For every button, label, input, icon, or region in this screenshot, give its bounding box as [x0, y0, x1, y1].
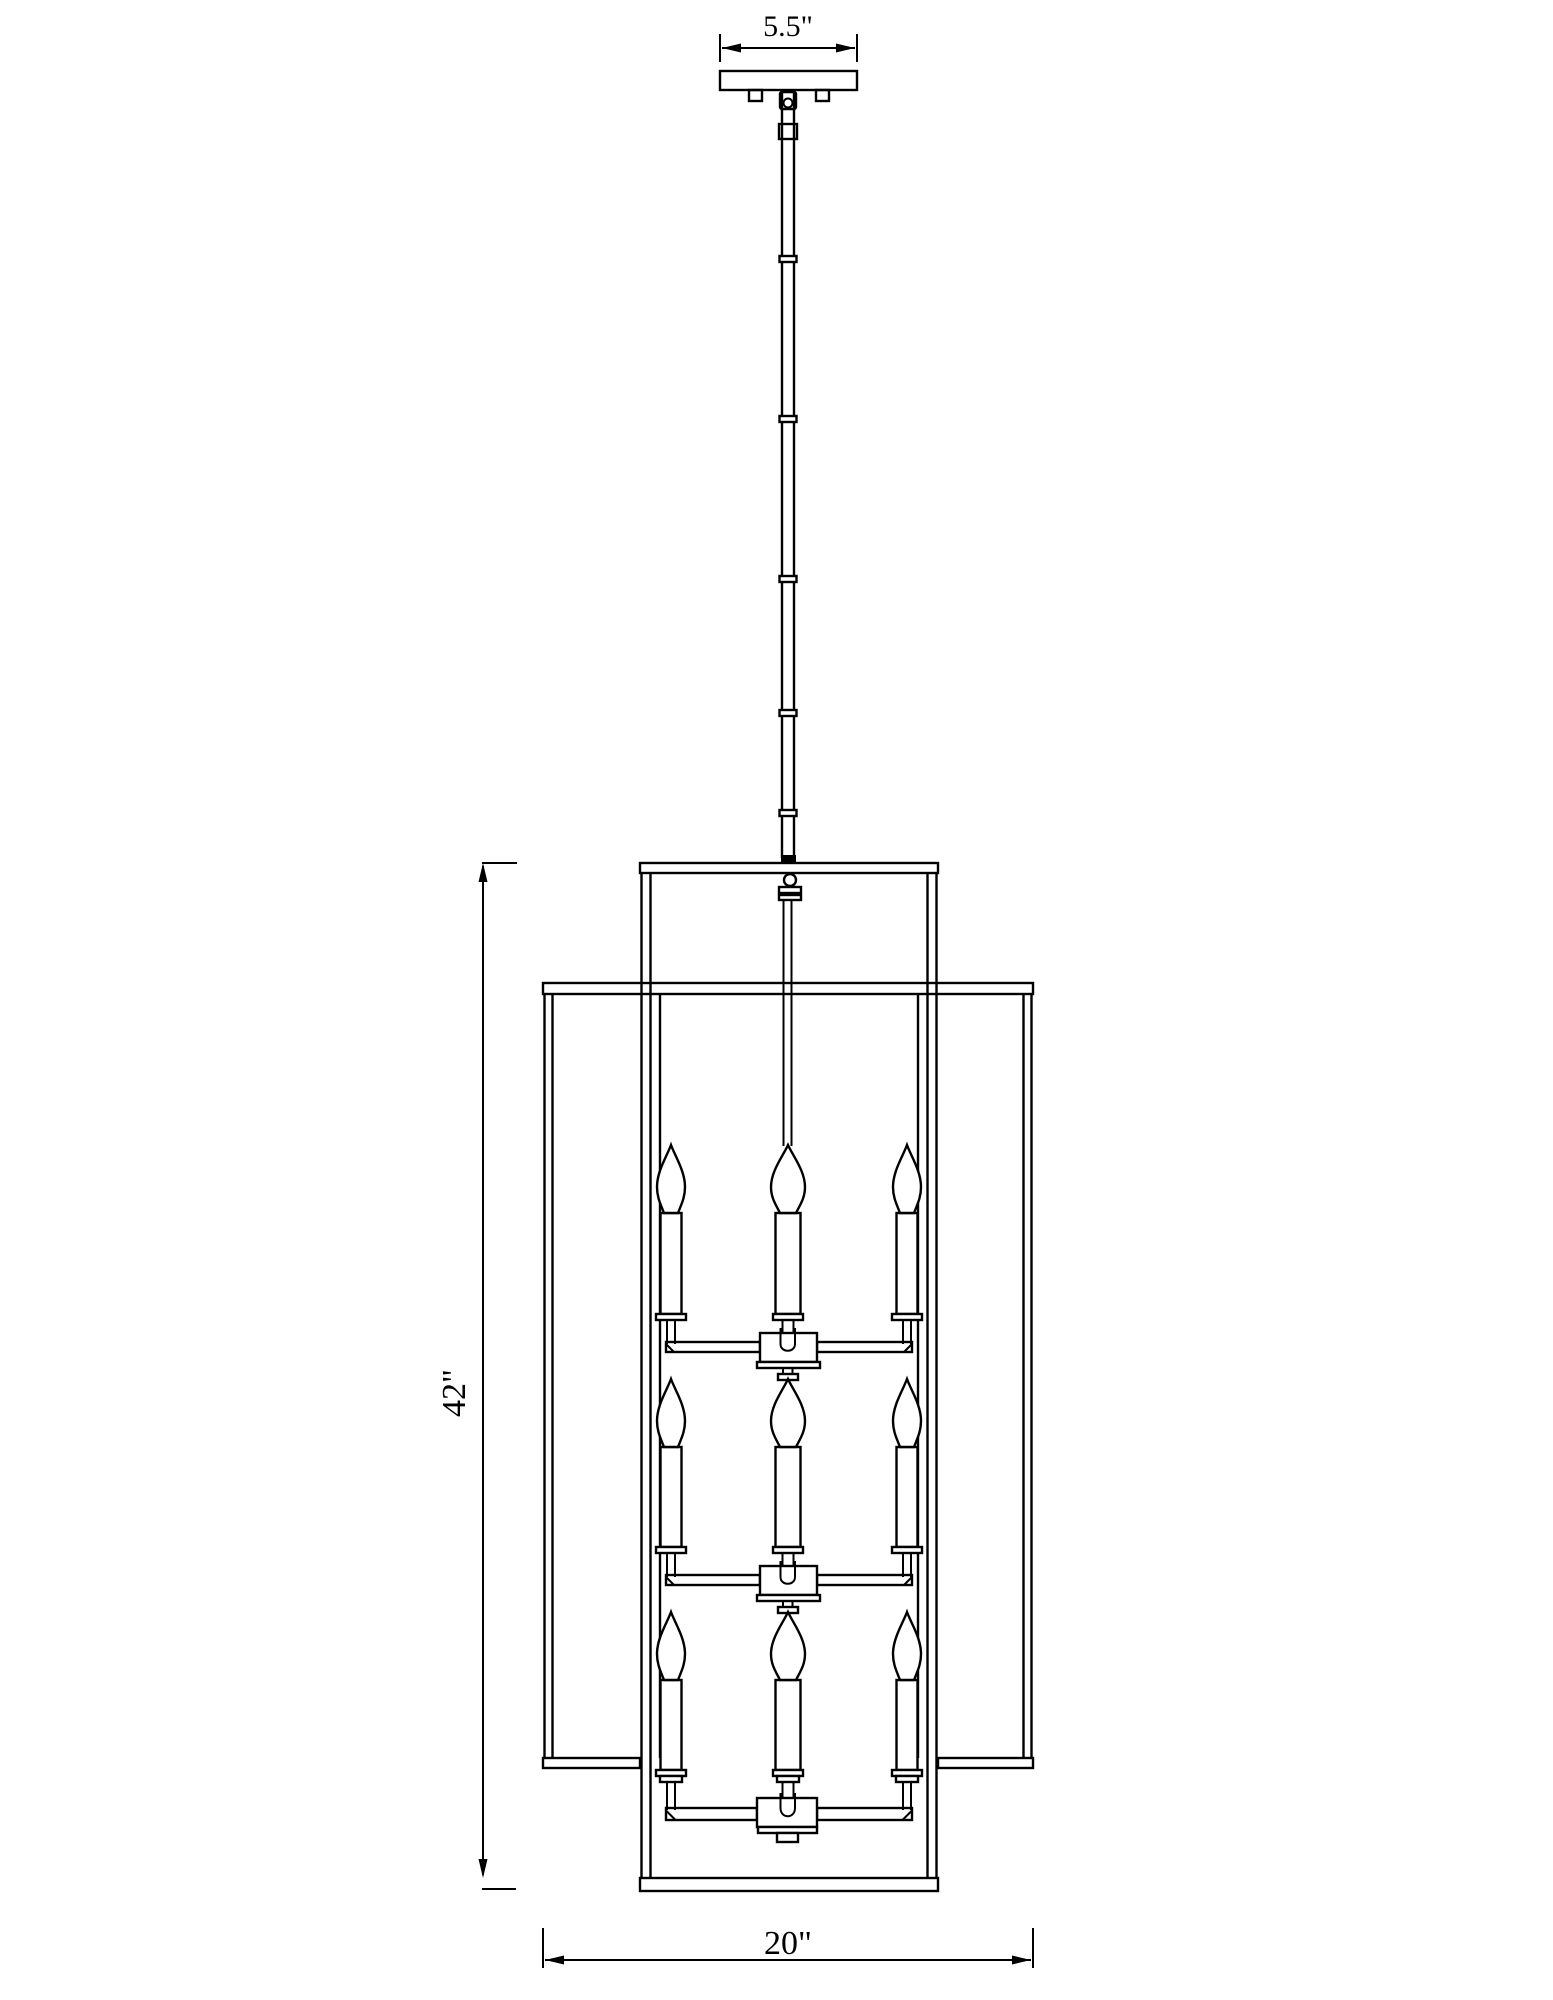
elbow-chamfer: [667, 1811, 676, 1820]
hub-block: [760, 1333, 817, 1362]
candle-sleeve: [661, 1447, 682, 1547]
center-stem: [779, 874, 801, 1146]
candle-sleeve: [776, 1680, 801, 1770]
arm-hub-assembly-1: [666, 1320, 912, 1380]
canopy-width-label: 5.5": [763, 10, 813, 43]
candle-collar-step: [777, 1776, 799, 1782]
technical-drawing-page: 5.5" 42": [0, 0, 1553, 2000]
dimension-canopy-width: 5.5": [720, 10, 857, 62]
top-rail: [640, 863, 938, 873]
candle-sleeve: [897, 1213, 918, 1314]
elbow-chamfer: [903, 1811, 912, 1820]
rod-coupling: [780, 710, 797, 716]
fixture-width-label: 20": [764, 1925, 812, 1962]
arrowhead-left-icon: [545, 1956, 564, 1965]
left-panel-bottom-rail: [543, 1758, 640, 1768]
candle-collar: [773, 1547, 803, 1553]
candle-collar: [892, 1547, 922, 1553]
panel-top-rail: [543, 983, 1033, 994]
arrowhead-down-icon: [479, 1859, 488, 1878]
bottom-finial: [777, 1833, 798, 1842]
left-arm: [666, 1342, 760, 1352]
arrowhead-right-icon: [836, 44, 855, 53]
ceiling-canopy: [720, 71, 857, 139]
flame-icon: [771, 1145, 805, 1213]
rod-frame-joint: [781, 855, 796, 863]
left-arm: [666, 1808, 757, 1820]
candle-sleeve: [661, 1213, 682, 1314]
dimension-fixture-height: 42": [436, 863, 517, 1889]
candle-sleeve: [897, 1680, 918, 1770]
rod-coupling: [780, 810, 797, 816]
candle-collar: [656, 1314, 686, 1320]
candle-collar: [892, 1314, 922, 1320]
right-arm: [817, 1808, 912, 1820]
rod-coupling: [780, 416, 797, 422]
canopy-foot-left: [749, 90, 762, 101]
candle-row-3: [656, 1612, 922, 1782]
candle-sleeve: [661, 1680, 682, 1770]
hub-plate: [757, 1595, 820, 1601]
right-arm: [817, 1342, 912, 1352]
stem-collar: [779, 895, 801, 900]
canopy-plate: [720, 71, 857, 90]
candle-collar-step: [660, 1776, 682, 1782]
arrowhead-right-icon: [1012, 1956, 1031, 1965]
flame-icon: [771, 1379, 805, 1447]
arm-hub-assembly-bottom: [666, 1782, 912, 1842]
hub-plate: [757, 1362, 820, 1368]
candle-row-1: [656, 1145, 922, 1320]
fixture-height-label: 42": [436, 1369, 473, 1417]
canopy-foot-right: [816, 90, 829, 101]
right-panel-bottom-rail: [938, 1758, 1033, 1768]
stem-collar: [779, 887, 801, 893]
pendant-light-line-drawing: 5.5" 42": [0, 0, 1553, 2000]
candle-sleeve: [776, 1447, 801, 1547]
bottom-rail: [640, 1878, 938, 1891]
dimension-fixture-width: 20": [543, 1925, 1033, 1968]
right-arm: [817, 1575, 912, 1585]
candle-row-2: [656, 1379, 922, 1553]
rod-coupling: [780, 576, 797, 582]
candle-sleeve: [897, 1447, 918, 1547]
arrowhead-left-icon: [722, 44, 741, 53]
stem-ball: [784, 874, 796, 886]
candle-collar-step: [896, 1776, 918, 1782]
rod-coupling: [780, 256, 797, 262]
left-arm: [666, 1575, 760, 1585]
arm-hub-assembly-2: [666, 1553, 912, 1613]
hub-block: [760, 1566, 817, 1595]
flame-icon: [771, 1612, 805, 1680]
candle-collar: [773, 1314, 803, 1320]
loop-ring: [784, 99, 793, 108]
hub-block: [757, 1798, 817, 1827]
candle-sleeve: [776, 1213, 801, 1314]
downrod: [780, 90, 797, 863]
candle-collar: [656, 1547, 686, 1553]
arrowhead-up-icon: [479, 863, 488, 882]
